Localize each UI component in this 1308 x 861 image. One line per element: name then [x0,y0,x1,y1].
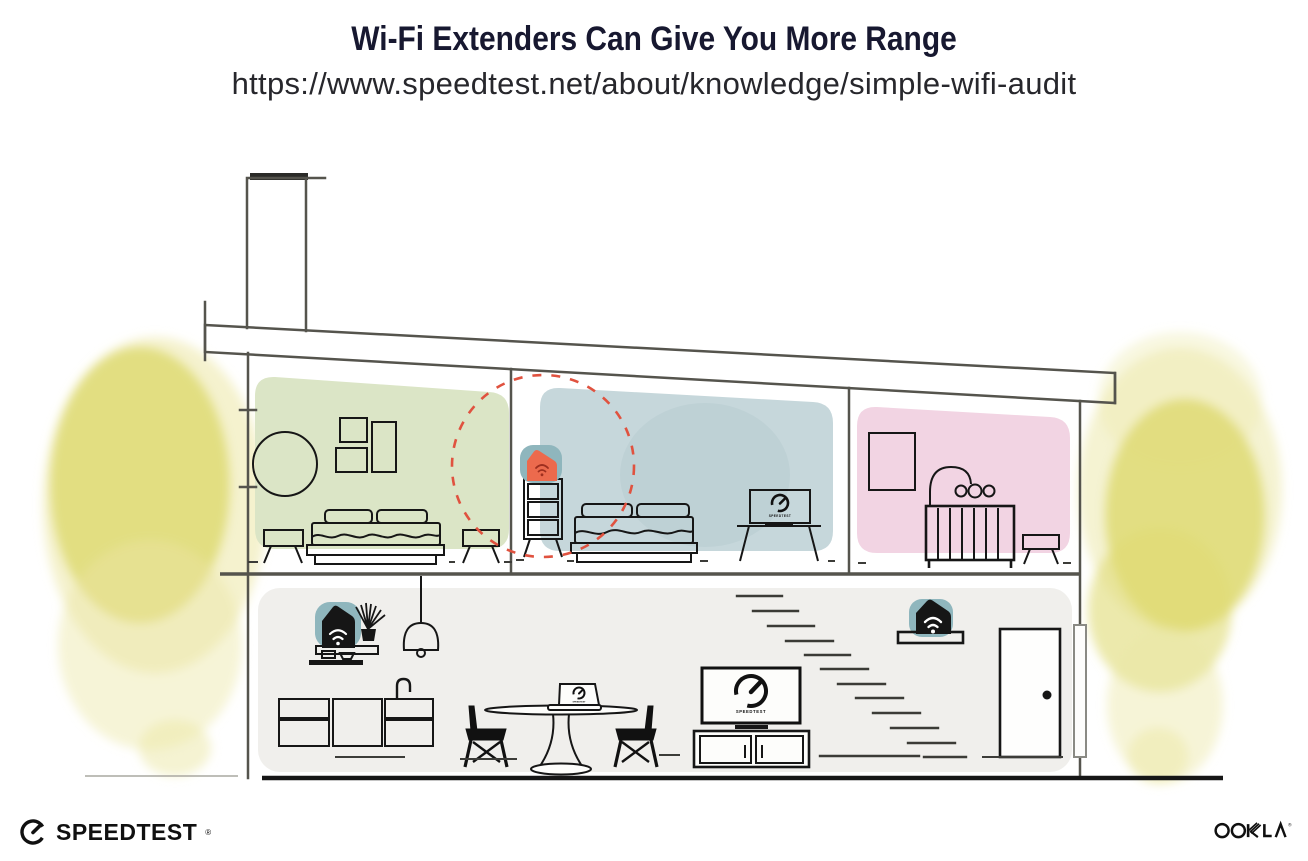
roof [205,173,1115,403]
living-tv-label: SPEEDTEST [736,709,766,714]
ookla-logo: ® [1214,816,1292,847]
tree-right [1078,332,1282,784]
speedtest-logo: SPEEDTEST ® [18,817,211,847]
living-tv: SPEEDTEST [702,668,800,729]
speedtest-wordmark: SPEEDTEST [56,819,197,846]
ookla-wordmark-icon: ® [1214,816,1292,842]
nursery-bg [857,407,1070,553]
speedtest-gauge-icon [18,817,48,847]
page-url: https://www.speedtest.net/about/knowledg… [0,66,1308,102]
infographic-page: Wi-Fi Extenders Can Give You More Range … [0,0,1308,861]
page-title: Wi-Fi Extenders Can Give You More Range [351,20,956,59]
ookla-trademark: ® [1288,822,1292,829]
speedtest-trademark: ® [205,828,211,837]
chimney [247,178,325,331]
header: Wi-Fi Extenders Can Give You More Range … [0,20,1308,102]
wifi-extender-upstairs [520,445,562,483]
downspout [1074,625,1086,757]
bedroom-tv-label: SPEEDTEST [769,514,792,518]
house-illustration: SPEEDTEST [0,0,1308,861]
laptop-label: SPEEDTEST [572,702,586,704]
door-knob [1043,691,1052,700]
tree-left [43,337,267,776]
footer: SPEEDTEST ® ® [0,805,1308,861]
tv-console [694,731,809,767]
